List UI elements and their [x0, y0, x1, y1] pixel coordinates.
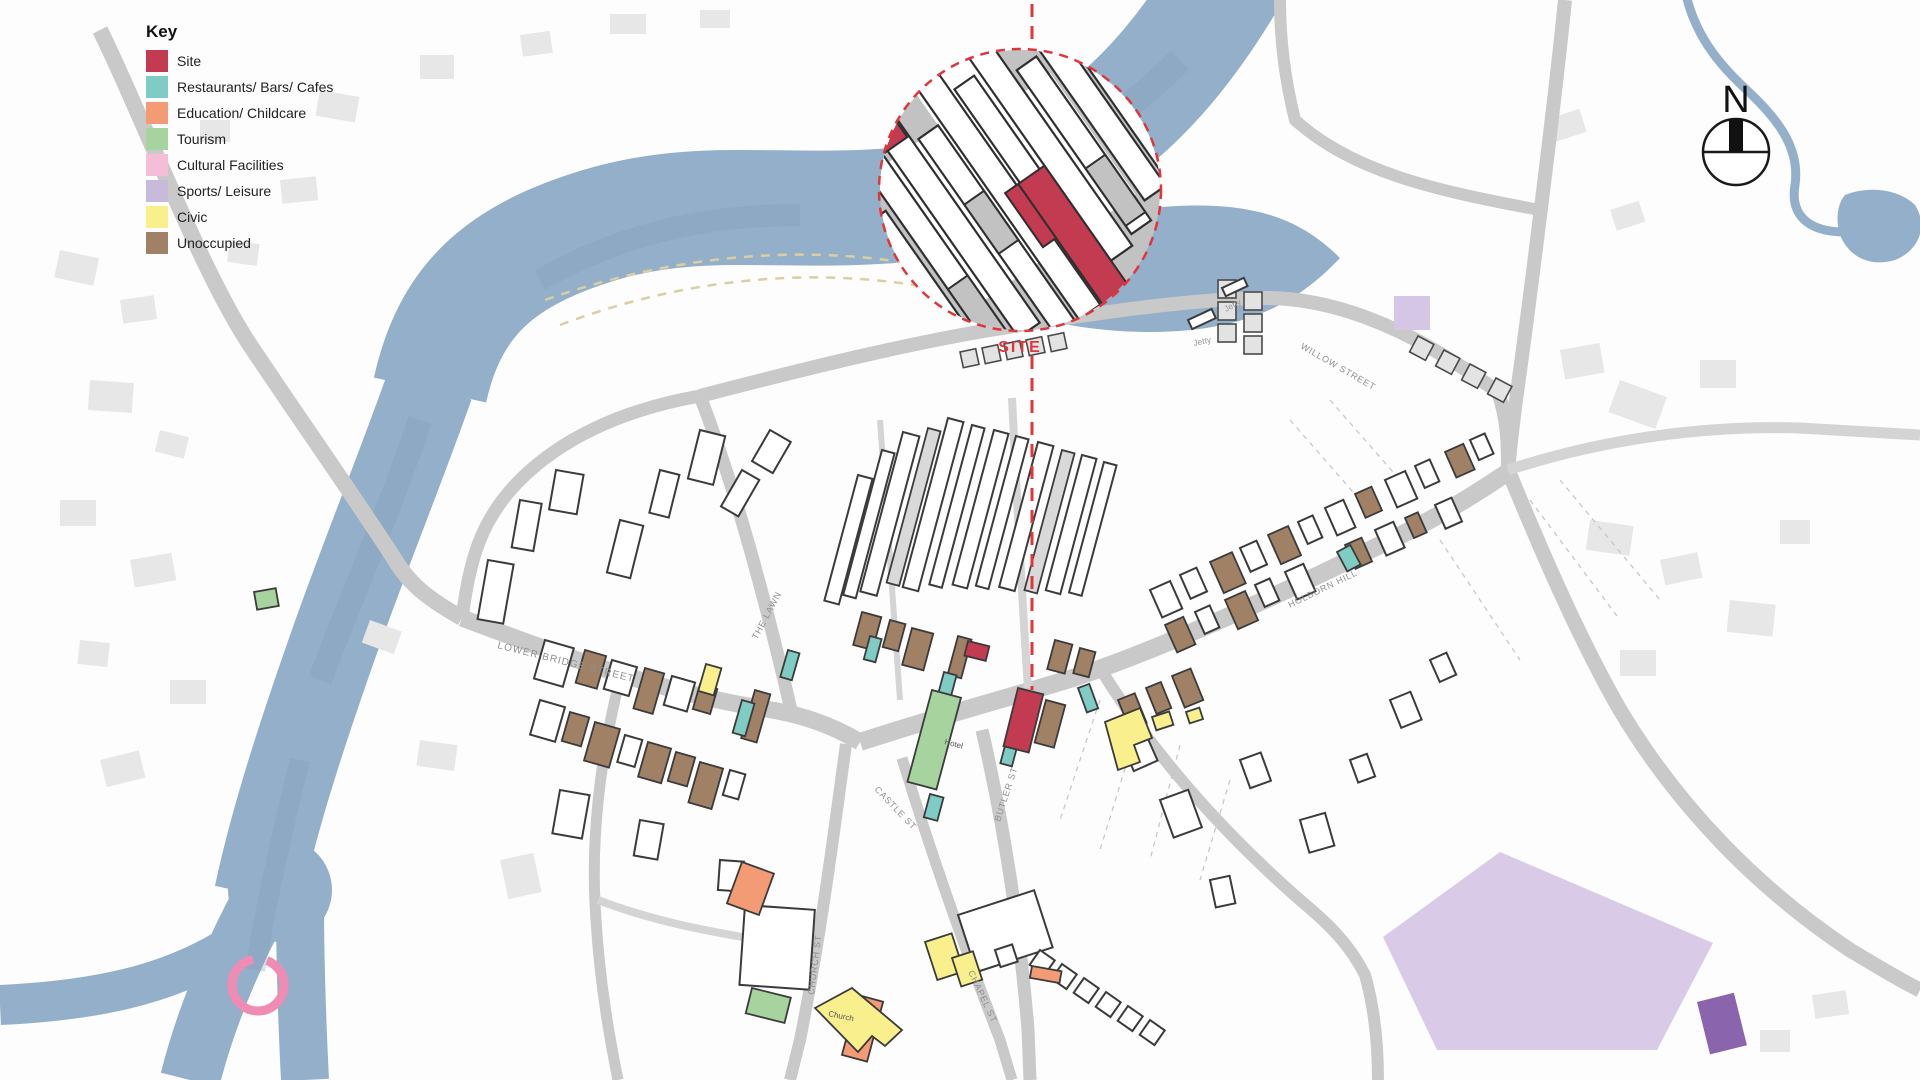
legend-item-cultural: Cultural Facilities: [146, 152, 333, 178]
legend-swatch-site: [146, 50, 168, 72]
legend-label: Education/ Childcare: [177, 105, 306, 121]
legend-item-sports: Sports/ Leisure: [146, 178, 333, 204]
street-label-chapel-st: CHAPEL ST: [966, 969, 999, 1025]
compass-needle: [1729, 119, 1743, 152]
legend-label: Civic: [177, 209, 207, 225]
legend-swatch-education: [146, 102, 168, 124]
jetty-label-2: Jetty: [1192, 334, 1212, 348]
legend-title: Key: [146, 22, 333, 42]
legend-swatch-restaurants: [146, 76, 168, 98]
legend-item-unoccupied: Unoccupied: [146, 230, 333, 256]
legend-item-site: Site: [146, 48, 333, 74]
map-labels: LOWER BRIDGE STREET THE LAWN CASTLE ST B…: [496, 296, 1377, 1024]
legend-swatch-unoccupied: [146, 232, 168, 254]
legend-item-restaurants: Restaurants/ Bars/ Cafes: [146, 74, 333, 100]
north-label: N: [1722, 79, 1749, 121]
street-label-willow-street: WILLOW STREET: [1299, 341, 1378, 392]
legend-label: Sports/ Leisure: [177, 183, 271, 199]
legend-label: Restaurants/ Bars/ Cafes: [177, 79, 333, 95]
legend-swatch-tourism: [146, 128, 168, 150]
legend-item-education: Education/ Childcare: [146, 100, 333, 126]
legend-item-civic: Civic: [146, 204, 333, 230]
legend-swatch-sports: [146, 180, 168, 202]
legend: Key Site Restaurants/ Bars/ Cafes Educat…: [146, 22, 333, 256]
legend-label: Unoccupied: [177, 235, 251, 251]
site-label: SITE: [998, 339, 1042, 356]
legend-label: Tourism: [177, 131, 226, 147]
site-analysis-map: LOWER BRIDGE STREET THE LAWN CASTLE ST B…: [0, 0, 1920, 1080]
legend-label: Site: [177, 53, 201, 69]
legend-swatch-cultural: [146, 154, 168, 176]
legend-item-tourism: Tourism: [146, 126, 333, 152]
town-buildings-layer: [478, 278, 1512, 1045]
north-arrow: N: [1703, 79, 1769, 185]
terrace-row-south: [1030, 950, 1165, 1045]
legend-swatch-civic: [146, 206, 168, 228]
legend-label: Cultural Facilities: [177, 157, 284, 173]
